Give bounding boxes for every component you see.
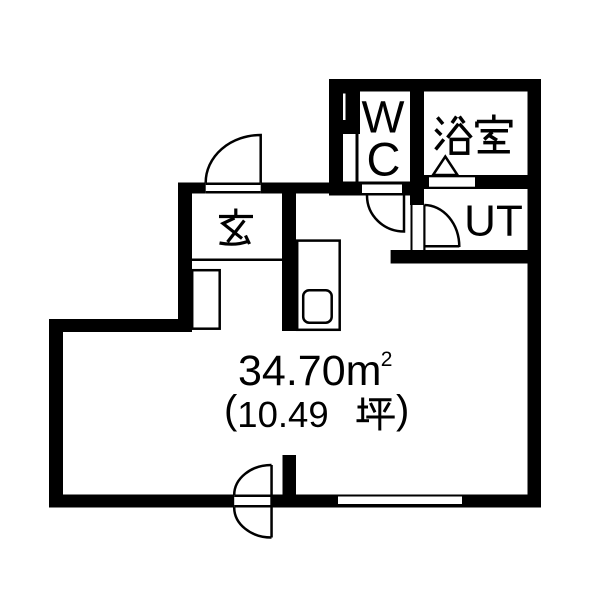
svg-text:10.49: 10.49	[237, 394, 328, 435]
svg-text:2: 2	[381, 348, 393, 371]
svg-text:UT: UT	[464, 197, 523, 246]
svg-text:(: (	[224, 388, 238, 432]
svg-text:C: C	[367, 133, 401, 186]
svg-text:34.70m: 34.70m	[238, 347, 381, 395]
svg-text:): )	[396, 388, 409, 432]
